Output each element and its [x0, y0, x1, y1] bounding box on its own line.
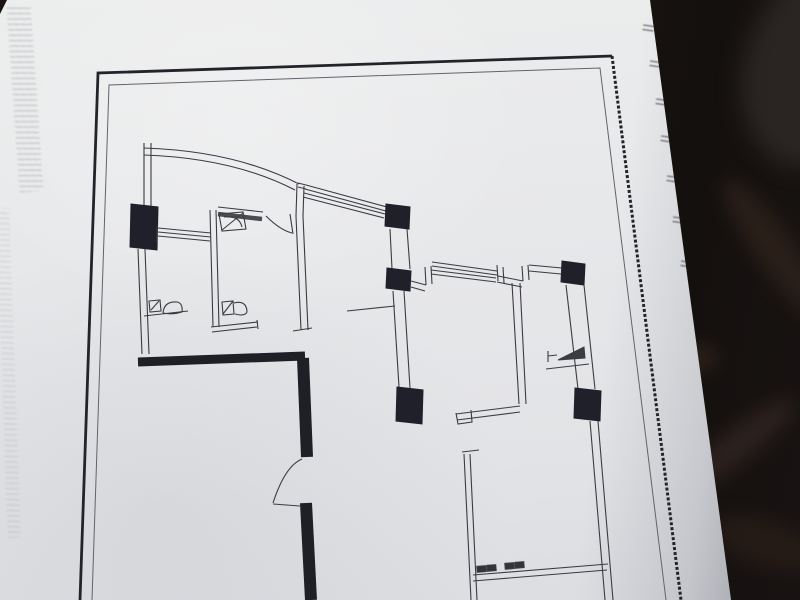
sill-mark-2 [487, 565, 496, 572]
thick-wall-vertical-lower [306, 503, 311, 600]
background-shadow-blob [710, 169, 800, 331]
column-c4 [561, 261, 585, 285]
balcony-wall-top [144, 143, 151, 207]
background-light-patch [714, 0, 800, 189]
column-c5 [574, 388, 601, 421]
frame-inner-border [92, 68, 666, 600]
connector-wall [497, 276, 523, 287]
west-wall [138, 249, 149, 354]
east-wall-lower [590, 421, 613, 600]
wall-c3-c6 [393, 291, 410, 388]
kitchen-fixture [558, 347, 585, 360]
bay-window-2-left-step [411, 266, 432, 291]
interior-wall-b [512, 283, 526, 404]
wall-c2-c3 [390, 229, 410, 269]
step-line [347, 306, 395, 311]
photo-scene [0, 0, 800, 600]
sill-mark-4 [515, 562, 524, 569]
column-c3 [386, 268, 411, 291]
bedroom-left-wall [462, 450, 479, 600]
column-c1 [130, 204, 158, 250]
sill-mark-3 [505, 563, 514, 570]
toilet-fixture-left [144, 300, 188, 316]
floorplan-drawing [0, 0, 800, 600]
frame-outer-border-right [612, 56, 681, 600]
window-right [529, 265, 562, 274]
hall-wall-mid [293, 184, 312, 331]
room-b-bottom-wall [456, 406, 520, 424]
bathroom-bottom-wall [211, 320, 258, 332]
bathroom-door-swing [266, 214, 293, 234]
window-right-step [522, 265, 529, 281]
entry-door-swing [273, 459, 302, 506]
frame-outer-border [80, 56, 612, 600]
toilet-fixture-bath [222, 301, 247, 315]
sill-mark-1 [477, 566, 486, 573]
column-c6 [396, 387, 423, 424]
thick-wall-vertical-upper [303, 358, 307, 457]
bathroom-top-window-line [218, 207, 263, 212]
column-c2 [385, 204, 410, 229]
east-wall-upper [566, 285, 595, 389]
balcony-curved-wall [144, 148, 299, 190]
bay-window-2-right-step [497, 265, 504, 283]
thick-wall-horizontal [138, 356, 305, 362]
bay-window-band-1 [298, 183, 387, 218]
bay-window-band-2 [431, 262, 497, 282]
bathroom-left-wall [210, 210, 219, 327]
paper-sheet [0, 0, 800, 600]
window-left [157, 226, 211, 243]
